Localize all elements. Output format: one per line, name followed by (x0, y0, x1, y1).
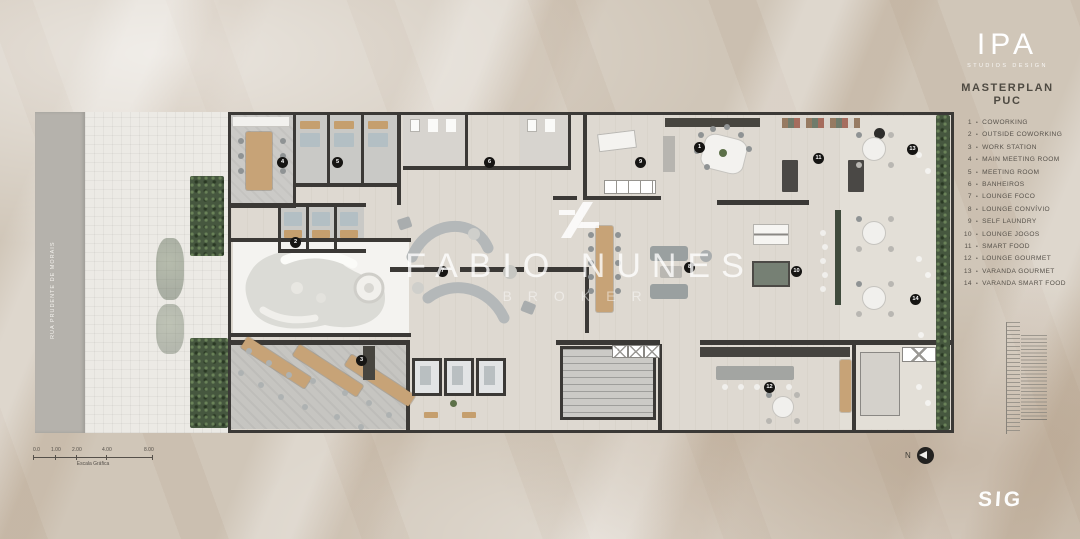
tower-elevation-sketch (1006, 322, 1048, 434)
laundry-machines (604, 180, 656, 194)
gourmet-island (716, 366, 794, 380)
legend-item: 1•COWORKING (962, 119, 1078, 131)
street-label: RUA PRUDENTE DE MORAIS (50, 235, 62, 345)
wall (327, 115, 330, 185)
booth-table (312, 212, 330, 226)
room-marker-9: 9 (635, 157, 646, 168)
booth-table (340, 212, 358, 226)
round-table (772, 396, 794, 418)
wall (700, 340, 952, 345)
scale-line (33, 457, 153, 458)
cabinet (663, 136, 675, 172)
legend-label: COWORKING (982, 119, 1028, 126)
legend-item: 13•VARANDA GOURMET (962, 268, 1078, 280)
planter-wall (835, 210, 841, 305)
gourmet-counter (700, 347, 850, 357)
scale-label: 0.0 (33, 447, 40, 453)
legend-item: 3•WORK STATION (962, 144, 1078, 156)
room-marker-3: 3 (356, 355, 367, 366)
legend-item: 11•SMART FOOD (962, 243, 1078, 255)
vending-machine (848, 160, 864, 192)
vent-box (902, 347, 936, 362)
booth-table (284, 212, 302, 226)
north-arrow-tip (919, 451, 927, 459)
legend-item: 7•LOUNGE FOCO (962, 193, 1078, 205)
round-table (862, 221, 886, 245)
legend-item: 12•LOUNGE GOURMET (962, 255, 1078, 267)
wall (568, 115, 571, 169)
hedge-entry-lower (190, 338, 228, 428)
booth-table (368, 133, 388, 147)
legend-num: 6 (962, 181, 972, 188)
smart-kitchen (860, 352, 900, 416)
legend-separator: • (976, 170, 978, 176)
bar-stools (820, 230, 826, 236)
booth-bench (300, 121, 320, 129)
legend-label: LOUNGE FOCO (982, 193, 1035, 200)
sig-logo: SIG (977, 488, 1024, 512)
legend-item: 6•BANHEIROS (962, 181, 1078, 193)
scale-caption: Escala Gráfica (63, 461, 123, 467)
scale-tick (152, 455, 153, 460)
watermark-name: FABIO NUNES (380, 247, 780, 286)
wc-fixtures (527, 119, 537, 132)
legend-num: 9 (962, 218, 972, 225)
legend-num: 2 (962, 131, 972, 138)
wall (397, 112, 401, 205)
legend-separator: • (976, 244, 978, 250)
shelf-counter-dark (665, 118, 760, 127)
plant-pot (719, 149, 727, 157)
vent-box (644, 345, 660, 358)
room-marker-1: 1 (694, 142, 705, 153)
room-marker-6: 6 (484, 157, 495, 168)
legend-label: BANHEIROS (982, 181, 1024, 188)
tower-floors (1021, 335, 1047, 420)
scale-tick (76, 455, 77, 460)
legend-num: 3 (962, 144, 972, 151)
legend-separator: • (976, 269, 978, 275)
booth-bench (340, 230, 358, 238)
legend-separator: • (976, 182, 978, 188)
tower-core (1006, 322, 1020, 434)
lobby-bench (462, 412, 476, 418)
chairs (856, 281, 862, 287)
room-marker-5: 5 (332, 157, 343, 168)
legend-num: 8 (962, 206, 972, 213)
wall (406, 340, 410, 432)
legend-separator: • (976, 256, 978, 262)
legend-label: WORK STATION (982, 144, 1037, 151)
brand-block: IPA STUDIOS DESIGN MASTERPLAN PUC (950, 28, 1065, 107)
bush-left-lower (156, 304, 184, 354)
scale-label: 2.00 (72, 447, 82, 453)
legend-item: 4•MAIN MEETING ROOM (962, 156, 1078, 168)
compass-label: N (905, 451, 911, 460)
booth-bench (334, 121, 354, 129)
wall (278, 249, 366, 253)
legend-label: VARANDA GOURMET (982, 268, 1055, 275)
room-marker-4: 4 (277, 157, 288, 168)
elevator (476, 358, 506, 396)
booth-table (334, 133, 354, 147)
legend-num: 10 (962, 231, 972, 238)
vent-box (612, 345, 628, 358)
room-marker-10: 10 (791, 266, 802, 277)
wall (278, 203, 281, 253)
legend-item: 5•MEETING ROOM (962, 169, 1078, 181)
wall (278, 203, 366, 207)
vending-machine (782, 160, 798, 192)
booth-bench (368, 121, 388, 129)
brand-tagline: STUDIOS DESIGN (950, 63, 1065, 69)
wall (306, 203, 309, 253)
watermark: FABIO NUNES BROKER (380, 200, 780, 304)
legend-num: 12 (962, 255, 972, 262)
kitchenette-counter (233, 117, 289, 127)
scale-tick (33, 455, 34, 460)
legend-num: 4 (962, 156, 972, 163)
legend-item: 10•LOUNGE JOGOS (962, 231, 1078, 243)
legend-label: SMART FOOD (982, 243, 1030, 250)
scale-tick (55, 455, 56, 460)
brand-logo: IPA (950, 28, 1065, 62)
elevator (444, 358, 474, 396)
wall (465, 115, 468, 169)
wall (231, 333, 411, 337)
legend-label: LOUNGE GOURMET (982, 255, 1051, 262)
wc-fixtures (410, 119, 420, 132)
legend-separator: • (976, 132, 978, 138)
legend-separator: • (976, 232, 978, 238)
legend-item: 8•LOUNGE CONVÍVIO (962, 206, 1078, 218)
scale-label: 4.00 (102, 447, 112, 453)
scale-tick (106, 455, 107, 460)
wall (293, 183, 401, 187)
round-table (862, 137, 886, 161)
lobby-bench (424, 412, 438, 418)
legend-label: MAIN MEETING ROOM (982, 156, 1060, 163)
legend-separator: • (976, 145, 978, 151)
legend-separator: • (976, 157, 978, 163)
room-marker-2: 2 (290, 237, 301, 248)
chairs (698, 132, 704, 138)
page-subtitle: PUC (950, 95, 1065, 107)
hedge-right-edge (936, 115, 950, 430)
chairs (238, 138, 244, 144)
legend-num: 13 (962, 268, 972, 275)
wall (293, 115, 296, 205)
legend-separator: • (976, 120, 978, 126)
legend-separator: • (976, 207, 978, 213)
legend-num: 1 (962, 119, 972, 126)
legend-label: SELF LAUNDRY (982, 218, 1037, 225)
legend-num: 11 (962, 243, 972, 250)
legend-item: 14•VARANDA SMART FOOD (962, 280, 1078, 292)
legend-label: LOUNGE JOGOS (982, 231, 1040, 238)
round-table (862, 286, 886, 310)
legend-num: 5 (962, 169, 972, 176)
hedge-entry-upper (190, 176, 224, 256)
legend: 1•COWORKING 2•OUTSIDE COWORKING 3•WORK S… (962, 119, 1078, 292)
room-marker-13: 13 (907, 144, 918, 155)
wall (852, 344, 856, 431)
room-marker-11: 11 (813, 153, 824, 164)
lobby-plant (450, 400, 457, 407)
chairs (856, 132, 862, 138)
room-marker-12: 12 (764, 382, 775, 393)
room-marker-14: 14 (910, 294, 921, 305)
lounge-chairs-right (916, 152, 922, 158)
bar-table (840, 360, 851, 412)
legend-item: 9•SELF LAUNDRY (962, 218, 1078, 230)
wall (583, 115, 587, 199)
compass: N (905, 447, 945, 467)
legend-num: 14 (962, 280, 972, 287)
legend-separator: • (976, 219, 978, 225)
legend-label: LOUNGE CONVÍVIO (982, 206, 1050, 213)
legend-separator: • (976, 281, 978, 287)
shelf-colorful (782, 118, 860, 128)
legend-label: MEETING ROOM (982, 169, 1039, 176)
booth-bench (312, 230, 330, 238)
elevator (412, 358, 442, 396)
chairs (246, 348, 252, 354)
booth-table (300, 133, 320, 147)
scale-bar: 0.0 1.00 2.00 4.00 8.00 Escala Gráfica (33, 447, 163, 469)
legend-label: VARANDA SMART FOOD (982, 280, 1066, 287)
wall (361, 115, 364, 185)
main-meeting-table (246, 132, 272, 190)
stools (722, 384, 728, 390)
legend-num: 7 (962, 193, 972, 200)
bush-left-upper (156, 238, 184, 300)
watermark-monogram-icon (553, 200, 607, 240)
legend-separator: • (976, 194, 978, 200)
legend-item: 2•OUTSIDE COWORKING (962, 131, 1078, 143)
watermark-subtitle: BROKER (380, 288, 780, 304)
scale-label: 8.00 (144, 447, 154, 453)
page-title: MASTERPLAN (950, 82, 1065, 94)
chairs (856, 216, 862, 222)
scale-label: 1.00 (51, 447, 61, 453)
vent-box (628, 345, 644, 358)
legend-label: OUTSIDE COWORKING (982, 131, 1062, 138)
wall (334, 203, 337, 253)
masterplan-poster: RUA PRUDENTE DE MORAIS (0, 0, 1080, 539)
